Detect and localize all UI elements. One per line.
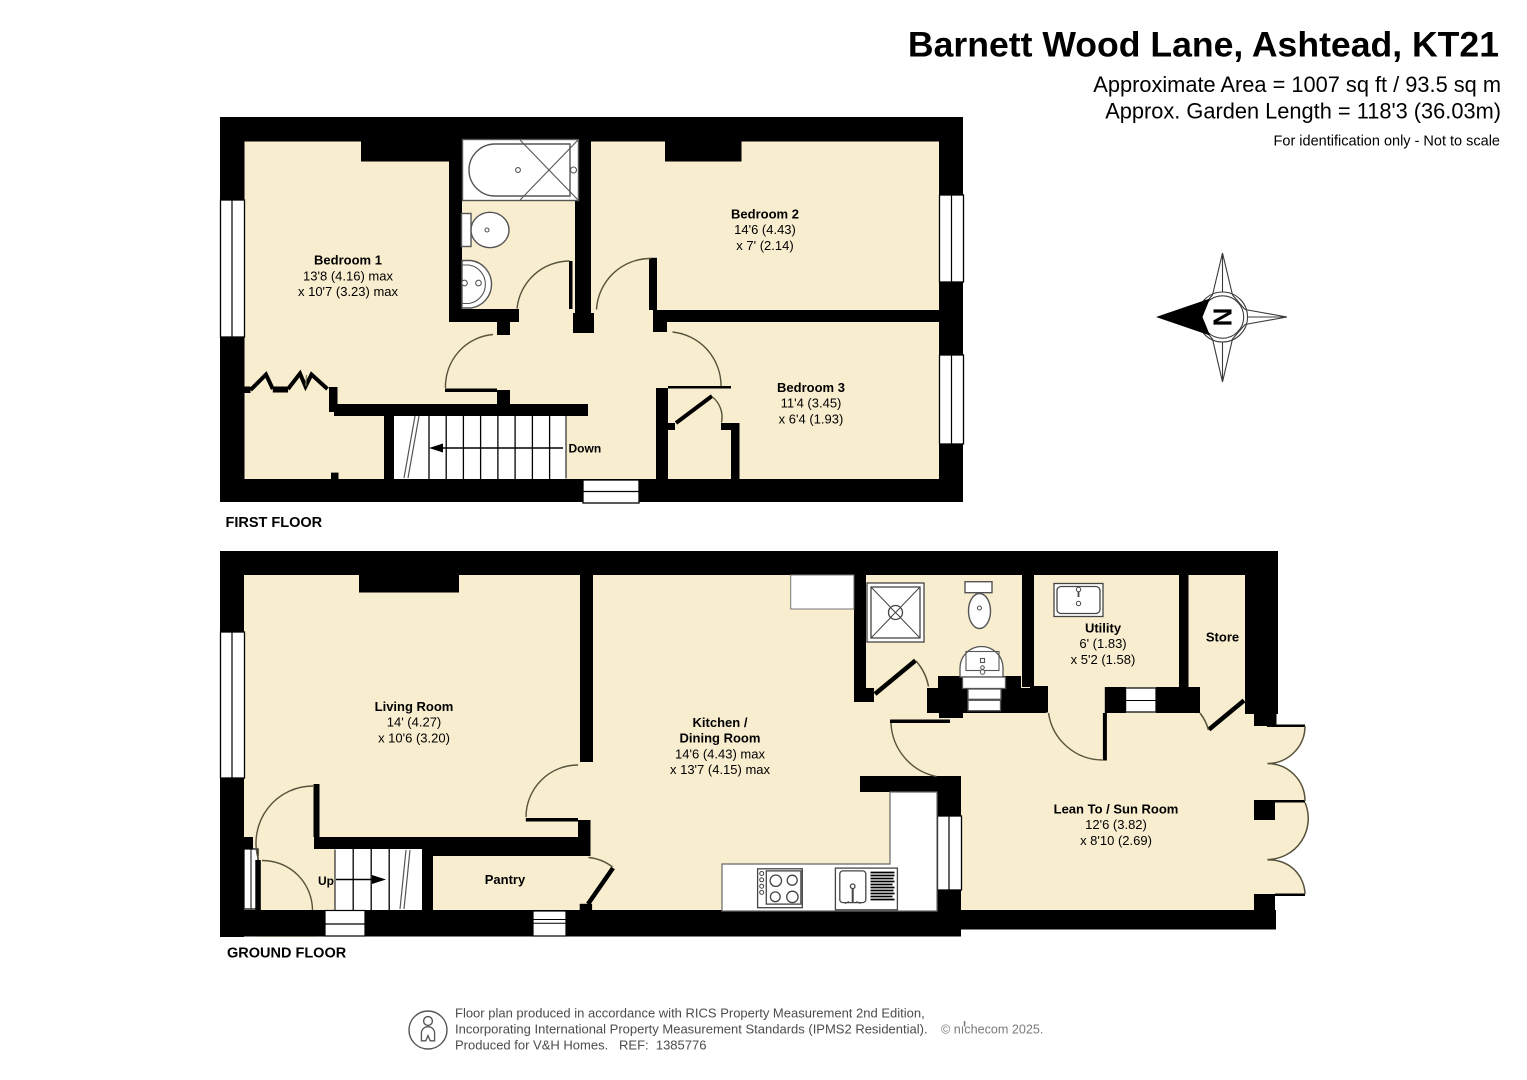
svg-text:Down: Down <box>569 442 602 456</box>
svg-text:Produced for V&H Homes. REF:: Produced for V&H Homes. REF: 1385776 <box>455 1038 706 1053</box>
svg-text:Pantry: Pantry <box>485 872 526 887</box>
svg-text:14'6 (4.43): 14'6 (4.43) <box>734 222 796 237</box>
svg-text:Bedroom 1: Bedroom 1 <box>314 253 382 268</box>
svg-text:© nıchecom 2025.: © nıchecom 2025. <box>941 1023 1043 1037</box>
svg-text:x 10'6 (3.20): x 10'6 (3.20) <box>378 730 450 745</box>
svg-text:Floor plan produced in accorda: Floor plan produced in accordance with R… <box>455 1006 925 1021</box>
svg-text:Incorporating International Pr: Incorporating International Property Mea… <box>455 1022 928 1037</box>
svg-text:GROUND FLOOR: GROUND FLOOR <box>227 946 347 962</box>
svg-text:Bedroom 3: Bedroom 3 <box>777 380 845 395</box>
svg-text:13'8 (4.16) max: 13'8 (4.16) max <box>303 268 393 283</box>
svg-text:14' (4.27): 14' (4.27) <box>387 715 442 730</box>
svg-text:x 10'7 (3.23) max: x 10'7 (3.23) max <box>298 284 399 299</box>
svg-text:Utility: Utility <box>1085 621 1122 636</box>
svg-text:Bedroom 2: Bedroom 2 <box>731 206 799 221</box>
svg-text:Approximate Area = 1007 sq ft: Approximate Area = 1007 sq ft / 93.5 sq … <box>1093 72 1501 97</box>
svg-text:14'6 (4.43) max: 14'6 (4.43) max <box>675 746 765 761</box>
svg-text:x 6'4 (1.93): x 6'4 (1.93) <box>779 411 844 426</box>
svg-text:For identification only - Not: For identification only - Not to scale <box>1274 134 1500 150</box>
svg-text:Store: Store <box>1206 630 1239 645</box>
svg-text:6' (1.83): 6' (1.83) <box>1079 636 1126 651</box>
svg-text:x 13'7 (4.15) max: x 13'7 (4.15) max <box>670 762 771 777</box>
svg-text:Lean To / Sun Room: Lean To / Sun Room <box>1054 802 1179 817</box>
svg-text:Up: Up <box>318 874 334 888</box>
svg-text:12'6 (3.82): 12'6 (3.82) <box>1085 817 1147 832</box>
svg-text:x 8'10 (2.69): x 8'10 (2.69) <box>1080 833 1152 848</box>
svg-text:Barnett Wood Lane, Ashtead, KT: Barnett Wood Lane, Ashtead, KT21 <box>908 25 1499 65</box>
svg-text:Kitchen /: Kitchen / <box>693 715 748 730</box>
svg-text:N: N <box>1208 308 1238 327</box>
svg-text:Living Room: Living Room <box>375 699 454 714</box>
svg-text:Dining Room: Dining Room <box>680 731 761 746</box>
svg-text:FIRST FLOOR: FIRST FLOOR <box>226 515 323 531</box>
svg-text:x 5'2 (1.58): x 5'2 (1.58) <box>1071 652 1136 667</box>
svg-text:Approx. Garden Length = 118'3: Approx. Garden Length = 118'3 (36.03m) <box>1105 99 1501 124</box>
svg-text:x 7' (2.14): x 7' (2.14) <box>736 238 793 253</box>
svg-text:11'4 (3.45): 11'4 (3.45) <box>781 396 842 411</box>
